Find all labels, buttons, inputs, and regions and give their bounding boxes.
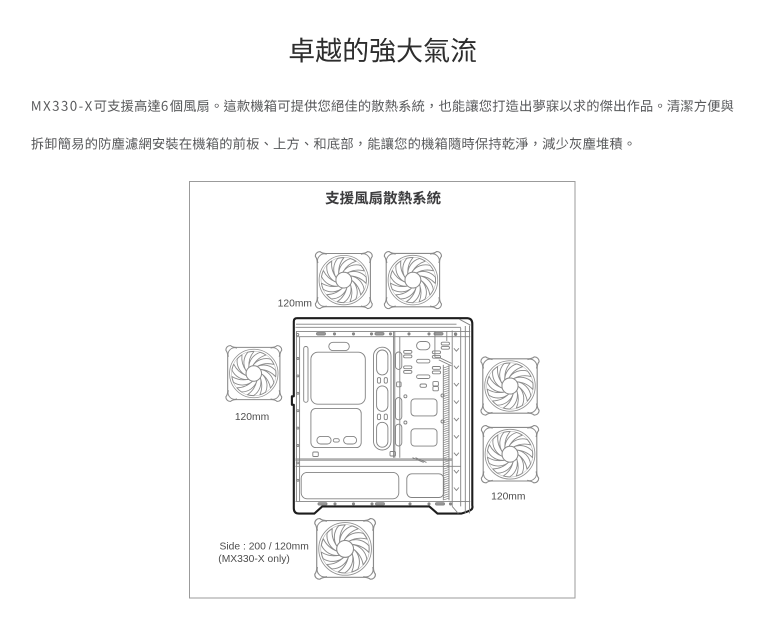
svg-text:120mm: 120mm bbox=[278, 299, 312, 310]
svg-text:120mm: 120mm bbox=[491, 492, 525, 503]
svg-text:(MX330-X only): (MX330-X only) bbox=[218, 554, 290, 565]
svg-text:Side : 200 / 120mm: Side : 200 / 120mm bbox=[220, 541, 309, 552]
svg-text:120mm: 120mm bbox=[235, 412, 269, 423]
